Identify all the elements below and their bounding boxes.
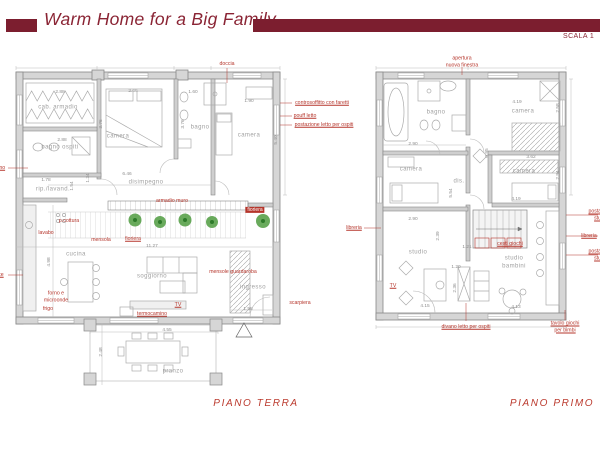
room-label: camera xyxy=(512,108,534,116)
room-label: ingresso xyxy=(240,284,266,292)
dimension-label: 2.58 xyxy=(556,103,562,112)
room-label: studio xyxy=(409,249,427,257)
room-label: dis. xyxy=(454,178,465,186)
dimension-label: 2.36 xyxy=(453,283,459,292)
dimension-label: 4.19 xyxy=(512,100,521,106)
annotation-label: apertura nuova finestra xyxy=(446,56,479,69)
annotation-label: p.cottura xyxy=(59,218,79,225)
dimension-label: 1.58 xyxy=(243,307,252,313)
room-label: disimpegno xyxy=(129,179,164,187)
dimension-label: 4.15 xyxy=(420,304,429,310)
annotation-label: doccia xyxy=(220,61,235,68)
annotation-label: libreria xyxy=(346,225,362,232)
dimension-label: 2.39 xyxy=(436,231,442,240)
room-label: camera xyxy=(513,168,535,176)
dimension-label: 1.60 xyxy=(188,90,197,96)
room-label: camera xyxy=(238,132,260,140)
dimension-label: 4.13 xyxy=(511,305,520,311)
annotation-label: TV xyxy=(175,302,182,309)
room-label: cab. armadio xyxy=(38,104,78,112)
dimension-label: 1.90 xyxy=(244,99,253,105)
annotation-label: tavolo giochi per bimbi xyxy=(548,321,583,334)
room-label: bagno ospiti xyxy=(41,144,78,152)
annotation-label: postazione studio xyxy=(588,209,600,222)
annotation-label: forno e microonde xyxy=(44,291,68,304)
dimension-label: 1.78 xyxy=(41,178,50,184)
dimension-label: 2.88 xyxy=(57,138,66,144)
dimension-label: 3.76 xyxy=(99,119,105,128)
dimension-label: 5.54 xyxy=(449,188,455,197)
annotation-label: fioriera xyxy=(125,236,141,243)
annotation-label: mensole guardaroba xyxy=(209,269,257,276)
dimension-label: 5.40 xyxy=(274,135,280,144)
annotation-label: fioriera xyxy=(245,207,264,213)
dimension-label: 1.20 xyxy=(451,265,460,271)
annotation-label: lavatrice xyxy=(0,272,4,279)
dimension-label: 6.46 xyxy=(122,172,131,178)
dimension-label: 2.48 xyxy=(99,347,105,356)
room-label: rip./lavand. xyxy=(36,186,70,194)
dimension-label: 2.94 xyxy=(556,170,562,179)
dimension-label: 2.90 xyxy=(408,217,417,223)
annotation-label: lavabo xyxy=(38,230,53,237)
annotation-label: postazione letto per ospiti xyxy=(295,122,354,129)
room-label: camera xyxy=(400,166,422,174)
annotation-label: TV xyxy=(390,283,397,290)
dimension-label: 1.21 xyxy=(462,245,471,251)
annotation-label: armadio muro xyxy=(156,198,188,205)
annotation-label: pouff letto xyxy=(294,113,317,120)
room-label: bagno xyxy=(427,109,446,117)
annotation-label: controsoffitto con faretti xyxy=(295,100,349,107)
room-label: camera xyxy=(107,133,129,141)
annotation-label: lavandino xyxy=(0,165,5,172)
annotation-label: mensola xyxy=(91,237,111,244)
dimension-label: 1.54 xyxy=(70,181,76,190)
annotation-label: termocamino xyxy=(137,311,167,318)
dimension-label: 11.27 xyxy=(146,244,158,250)
room-label: soggiorno xyxy=(137,273,167,281)
room-label: studio bambini xyxy=(502,256,526,271)
dimension-label: 1.34 xyxy=(86,173,92,182)
dimension-label: 4.55 xyxy=(162,328,171,334)
plan-caption: PIANO TERRA xyxy=(213,398,298,411)
dimension-label: 3.62 xyxy=(526,155,535,161)
dimension-label: 2.90 xyxy=(408,142,417,148)
annotation-label: postazione studio xyxy=(588,249,600,262)
dimension-label: 2.88 xyxy=(55,90,64,96)
room-label: bagno xyxy=(191,124,210,132)
dimension-label: 4.98 xyxy=(47,257,53,266)
room-label: cucina xyxy=(66,251,86,259)
annotation-label: divano letto per ospiti xyxy=(441,324,490,331)
annotation-label: libreria xyxy=(581,233,597,240)
annotation-label: cesti giochi xyxy=(497,241,523,248)
annotation-label: frigo xyxy=(43,306,53,313)
room-label: pranzo xyxy=(163,368,184,376)
plan-caption: PIANO PRIMO xyxy=(510,398,594,411)
dimension-label: 2.66 xyxy=(128,89,137,95)
dimension-label: 3.76 xyxy=(181,119,187,128)
annotation-label: scarpiera xyxy=(289,300,310,307)
dimension-label: 4.19 xyxy=(511,197,520,203)
dimension-label: 0.95 xyxy=(485,148,491,157)
labels-layer: cab. armadiobagno ospiticamerabagnocamer… xyxy=(0,0,600,460)
